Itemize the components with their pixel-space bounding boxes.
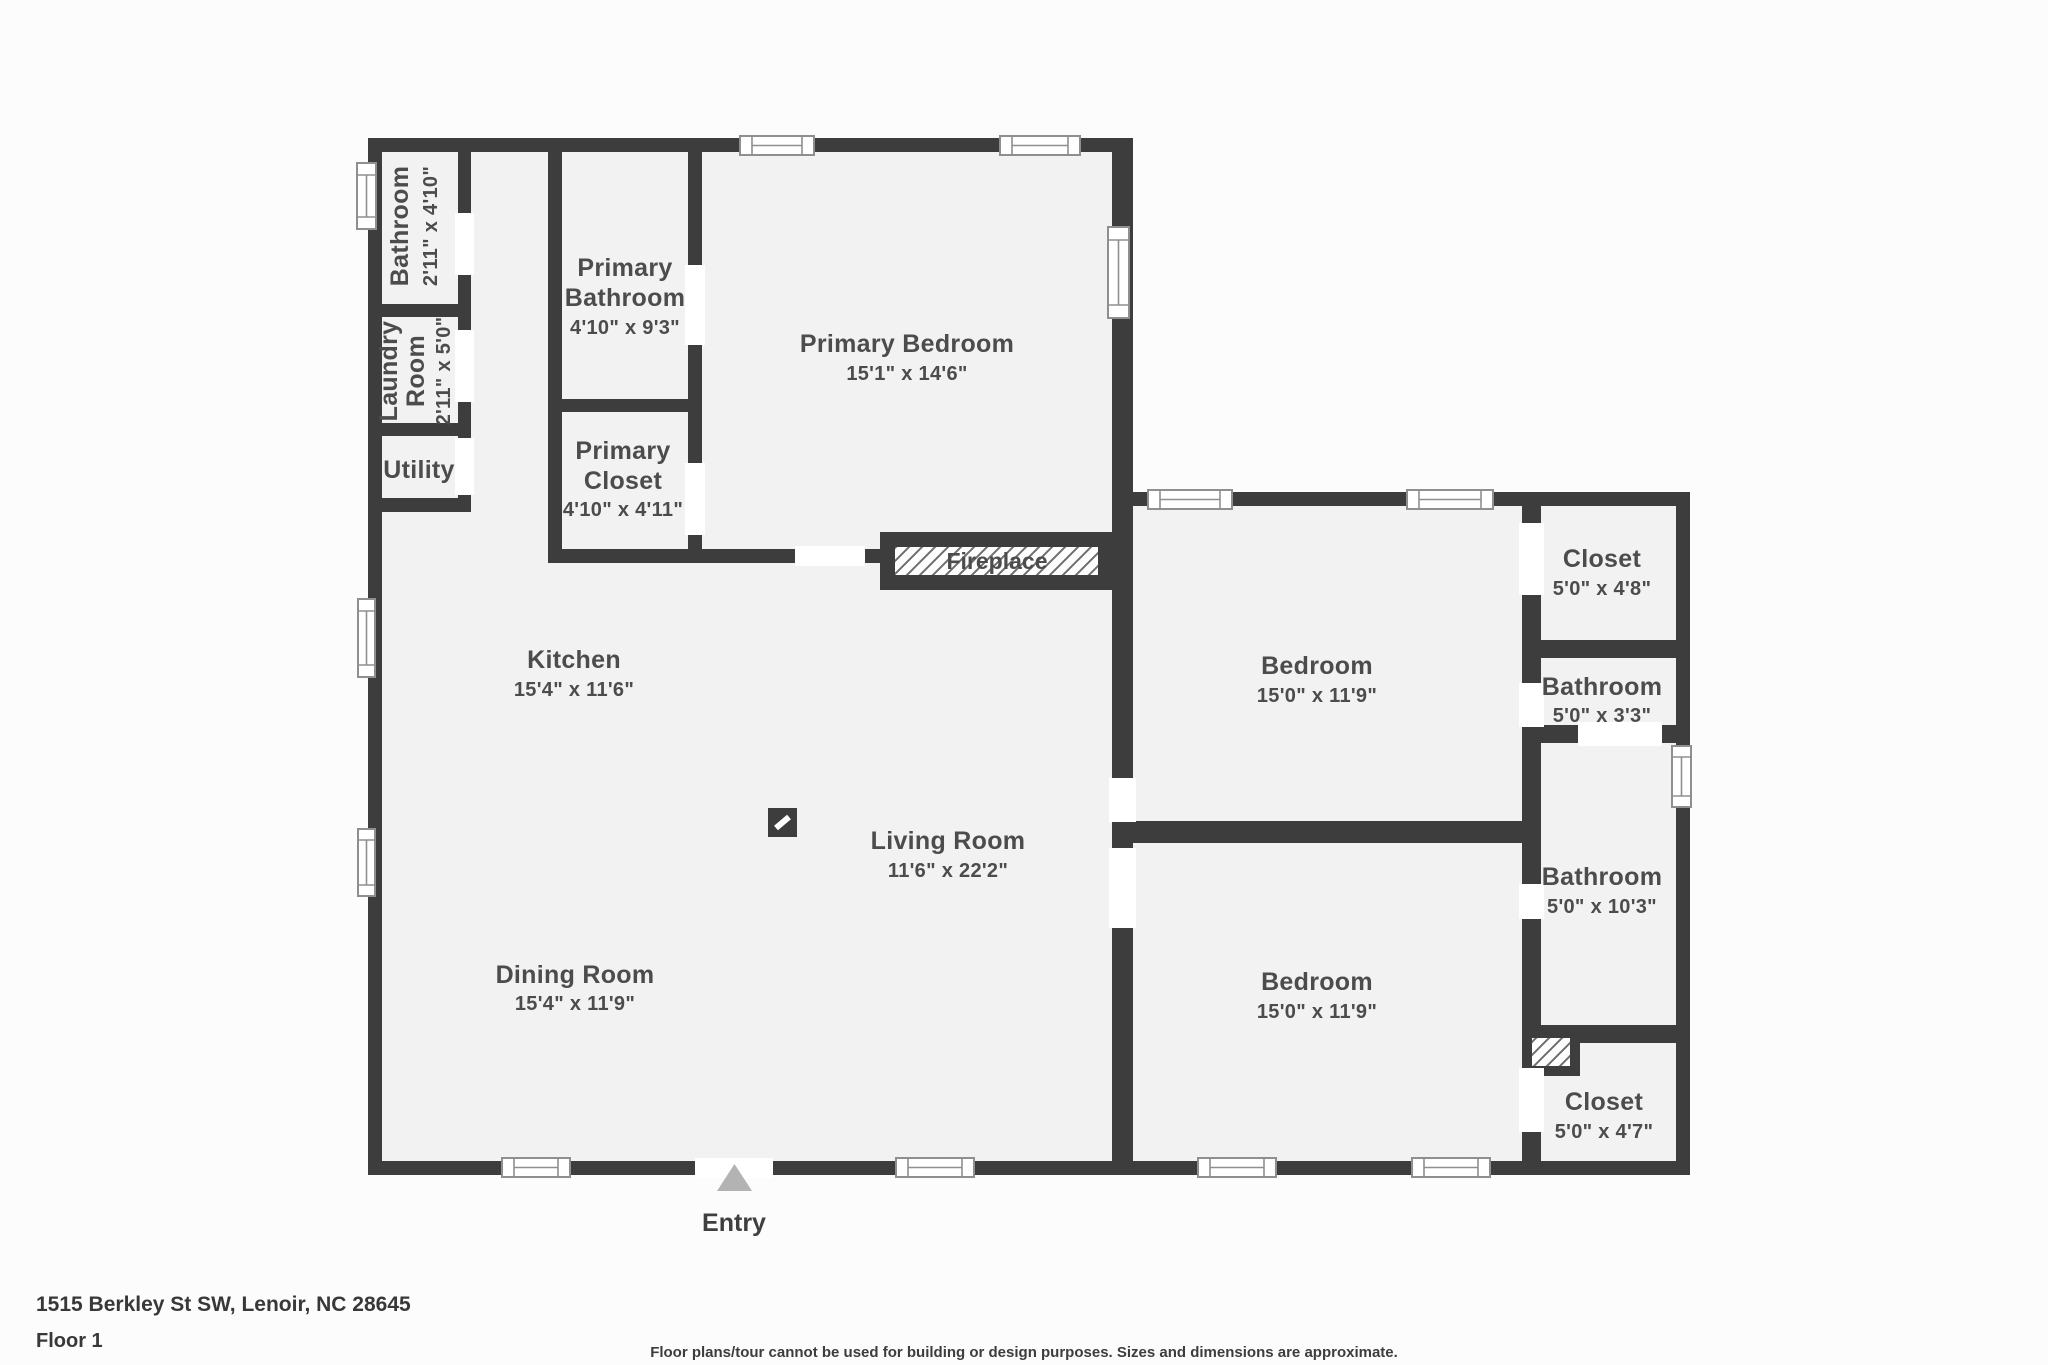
window [740, 136, 814, 155]
fireplace: Fireplace [880, 532, 1113, 590]
chase-hatch [1532, 1038, 1570, 1066]
window [357, 163, 376, 229]
door-bathroom-tall [1519, 884, 1544, 919]
door-bathroom-small [1519, 683, 1544, 727]
door-laundry [455, 330, 474, 402]
door-primary-bedroom [795, 546, 865, 566]
window [1407, 490, 1493, 509]
window [1412, 1158, 1490, 1177]
room-label-primary-bathroom-1: Primary [577, 254, 672, 282]
room-label-closet-top: Closet [1563, 545, 1642, 573]
entry-label: Entry [702, 1209, 766, 1237]
room-dims-primary-bathroom: 4'10" x 9'3" [570, 317, 680, 339]
room-dims-closet-top: 5'0" x 4'8" [1553, 578, 1652, 600]
room-label-bathroom-small: Bathroom [1542, 673, 1662, 701]
window [358, 599, 375, 677]
disclaimer-text: Floor plans/tour cannot be used for buil… [650, 1344, 1398, 1361]
chimney-icon [768, 808, 797, 837]
door-closet-bottom [1519, 1068, 1544, 1132]
room-dims-dining: 15'4" x 11'9" [515, 993, 635, 1015]
door-primary-bathroom [685, 265, 705, 345]
room-label-utility: Utility [383, 456, 455, 484]
room-label-dining: Dining Room [496, 961, 655, 989]
floor-plan-page: Fireplace [0, 0, 2048, 1365]
room-dims-kitchen: 15'4" x 11'6" [514, 679, 634, 701]
room-dims-bedroom-top: 15'0" x 11'9" [1257, 685, 1377, 707]
window [1198, 1158, 1276, 1177]
floor-label: Floor 1 [36, 1330, 103, 1352]
room-dims-living: 11'6" x 22'2" [888, 860, 1008, 882]
main-floor-area [368, 138, 1133, 1175]
door-closet-top [1519, 523, 1544, 595]
room-dims-laundry: 2'11" x 5'0" [433, 317, 455, 426]
room-label-bathroom-tl: Bathroom [386, 166, 414, 286]
room-dims-primary-closet: 4'10" x 4'11" [563, 499, 683, 521]
window [502, 1158, 570, 1177]
room-label-bedroom-bottom: Bedroom [1261, 968, 1373, 996]
window [1672, 746, 1691, 807]
room-label-primary-bedroom: Primary Bedroom [800, 330, 1014, 358]
room-dims-bedroom-bottom: 15'0" x 11'9" [1257, 1001, 1377, 1023]
door-bathroom-tl [455, 213, 474, 275]
room-label-primary-bathroom-2: Bathroom [565, 284, 685, 312]
fireplace-label: Fireplace [947, 548, 1048, 574]
door-bedroom-top [1109, 778, 1136, 822]
door-primary-closet [685, 463, 705, 535]
floor-plan-svg: Fireplace [0, 0, 2048, 1365]
room-dims-primary-bedroom: 15'1" x 14'6" [846, 363, 967, 385]
address-text: 1515 Berkley St SW, Lenoir, NC 28645 [36, 1293, 411, 1316]
room-label-laundry-2: Room [402, 335, 430, 407]
window [1108, 227, 1129, 318]
window [1000, 136, 1080, 155]
window [1148, 490, 1232, 509]
room-label-living: Living Room [871, 827, 1026, 855]
window [896, 1158, 974, 1177]
room-label-kitchen: Kitchen [527, 646, 621, 674]
room-dims-bathroom-small: 5'0" x 3'3" [1553, 705, 1652, 727]
room-dims-bathroom-tall: 5'0" x 10'3" [1547, 896, 1657, 918]
room-label-primary-closet-2: Closet [584, 467, 663, 495]
window [358, 829, 375, 896]
room-label-bathroom-tall: Bathroom [1542, 863, 1662, 891]
room-label-laundry-1: Laundry [375, 321, 403, 422]
door-bedroom-bottom [1109, 848, 1136, 928]
room-label-bedroom-top: Bedroom [1261, 652, 1373, 680]
door-utility [455, 438, 474, 495]
room-label-primary-closet-1: Primary [575, 437, 670, 465]
room-dims-bathroom-tl: 2'11" x 4'10" [420, 166, 442, 286]
room-dims-closet-bottom: 5'0" x 4'7" [1555, 1121, 1654, 1143]
room-label-closet-bottom: Closet [1565, 1088, 1644, 1116]
